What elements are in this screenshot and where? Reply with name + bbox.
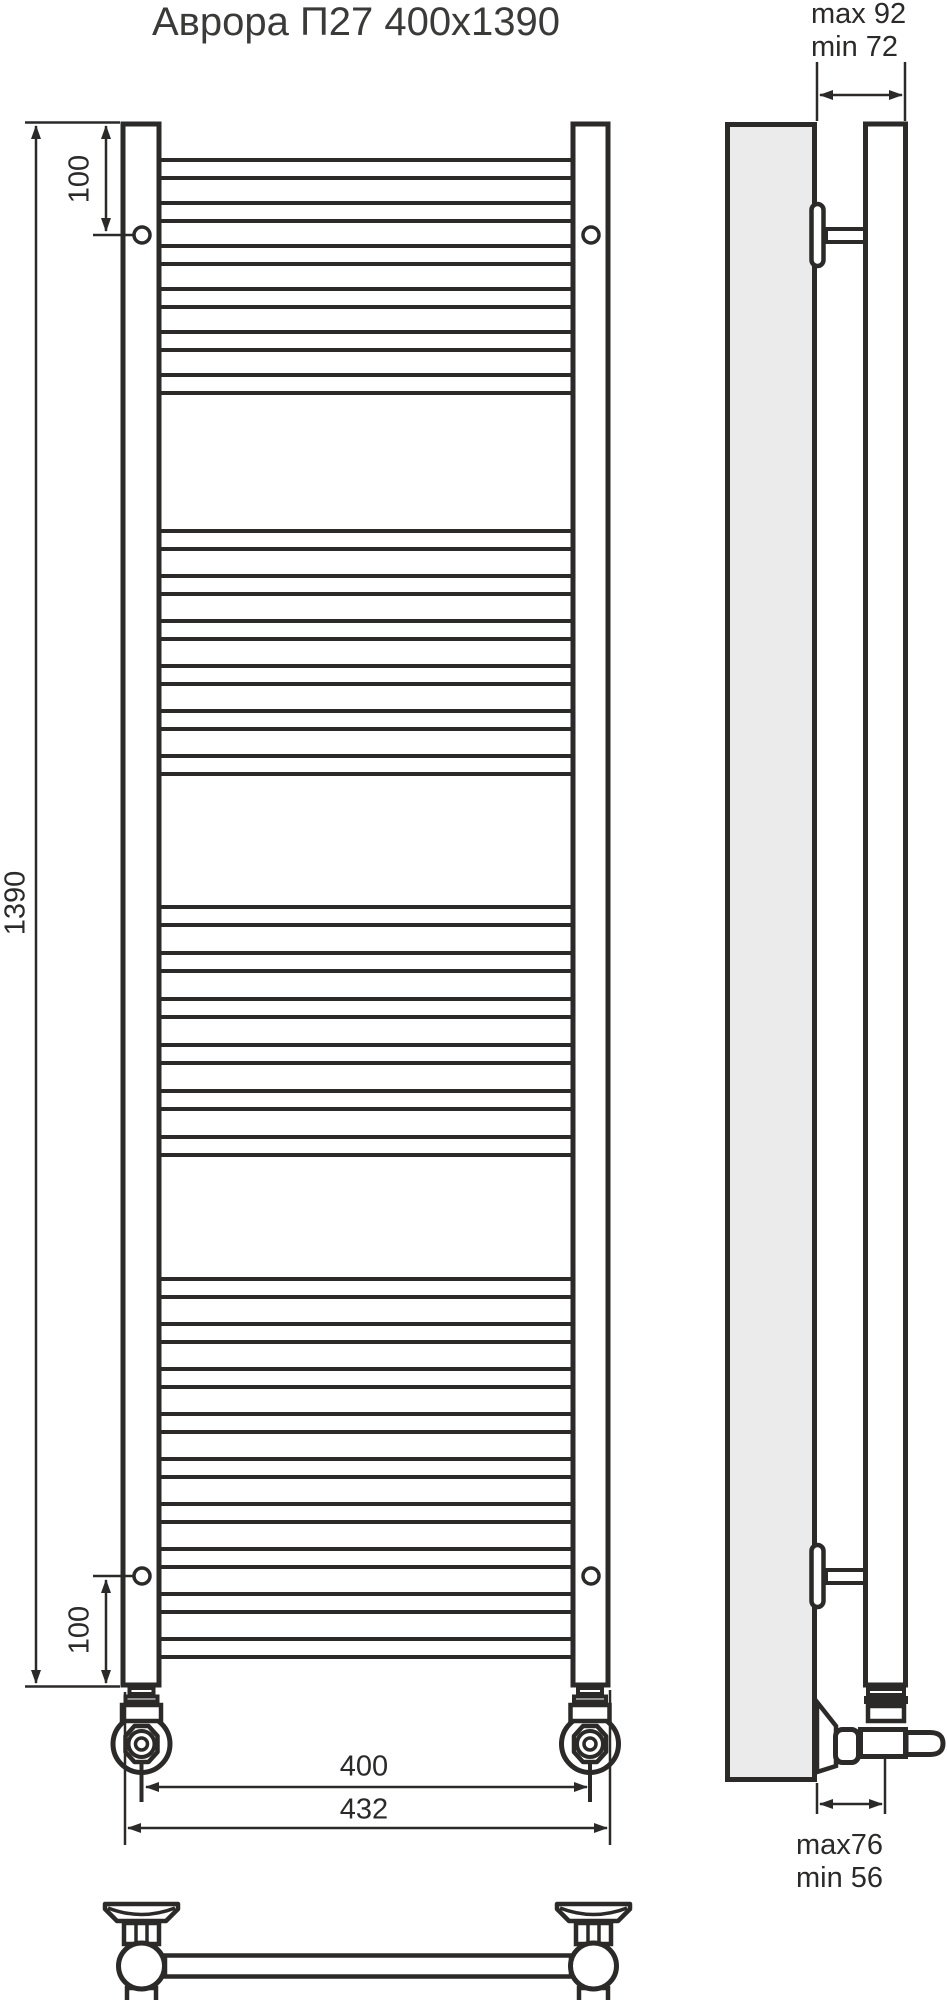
- mount-hole-icon: [134, 227, 150, 243]
- rung: [159, 576, 573, 594]
- rung: [159, 1414, 573, 1432]
- tube-collar-1: [868, 1689, 904, 1695]
- dim-label-bottom-offset: 100: [64, 1606, 97, 1654]
- bracket-rod-bottom: [826, 1570, 865, 1583]
- rung: [159, 999, 573, 1017]
- rung: [159, 1549, 573, 1567]
- right-tube: [573, 124, 608, 1685]
- valve-front-left: [113, 1688, 170, 1802]
- dim-depth-top-min: min 72: [811, 31, 906, 64]
- valve-body: [861, 1730, 906, 1757]
- dim-label-top-offset: 100: [64, 155, 97, 203]
- rung: [159, 1639, 573, 1657]
- tube-collar-2: [866, 1698, 906, 1702]
- bottom-view: [105, 1904, 630, 2000]
- dim-label-height: 1390: [0, 871, 33, 936]
- bracket-plate-bottom: [812, 1545, 824, 1607]
- tube-nut: [868, 1706, 904, 1721]
- rung: [159, 1045, 573, 1063]
- valve-spout: [906, 1733, 943, 1755]
- dim-label-axle-width: 400: [340, 1751, 388, 1784]
- dim-depth-top-max: max 92: [811, 0, 906, 31]
- rung: [159, 1459, 573, 1477]
- rung-group-1: [159, 160, 573, 393]
- bottom-rung-bar: [165, 1956, 571, 1977]
- rung-group-2: [159, 531, 573, 774]
- rung: [159, 375, 573, 393]
- wall: [728, 125, 815, 1780]
- front-view: [93, 124, 619, 1802]
- rung: [159, 160, 573, 178]
- rung: [159, 203, 573, 221]
- rung-group-3: [159, 907, 573, 1155]
- mount-hole-icon: [583, 227, 599, 243]
- rung: [159, 907, 573, 925]
- rung: [159, 531, 573, 549]
- rung: [159, 1137, 573, 1155]
- rung: [159, 1091, 573, 1109]
- rung: [159, 621, 573, 639]
- rung: [159, 1369, 573, 1387]
- rung: [159, 666, 573, 684]
- rung: [159, 1594, 573, 1612]
- rung: [159, 1279, 573, 1297]
- dim-depth-bottom-min: min 56: [796, 1862, 883, 1895]
- rung: [159, 953, 573, 971]
- left-tube: [123, 124, 159, 1685]
- technical-drawing-page: Аврора П27 400x1390 1390 100 100 400 432…: [0, 0, 947, 2000]
- mount-hole-icon: [134, 1568, 150, 1584]
- valve-side: [817, 1689, 943, 1772]
- elbow-nut: [836, 1730, 859, 1763]
- rung: [159, 756, 573, 774]
- rung: [159, 246, 573, 264]
- bracket-plate-top: [812, 204, 824, 266]
- bracket-rod-top: [826, 229, 865, 242]
- bottom-bracket-right: [557, 1904, 630, 2000]
- dim-depth-bottom-max: max76: [796, 1829, 883, 1862]
- rung-group-4: [159, 1279, 573, 1657]
- drawing-title: Аврора П27 400x1390: [140, 0, 572, 44]
- rung: [159, 289, 573, 307]
- rung: [159, 332, 573, 350]
- dim-label-depth-top: max 92 min 72: [811, 0, 906, 64]
- side-tube: [866, 124, 906, 1685]
- dim-label-overall-width: 432: [340, 1794, 388, 1827]
- rung: [159, 1504, 573, 1522]
- dim-label-depth-bottom: max76 min 56: [796, 1829, 883, 1895]
- rung: [159, 1324, 573, 1342]
- bottom-bracket-left: [105, 1904, 178, 2000]
- towel-rail-drawing: [0, 0, 947, 2000]
- rung: [159, 711, 573, 729]
- mount-hole-icon: [583, 1568, 599, 1584]
- side-view: [728, 124, 944, 1780]
